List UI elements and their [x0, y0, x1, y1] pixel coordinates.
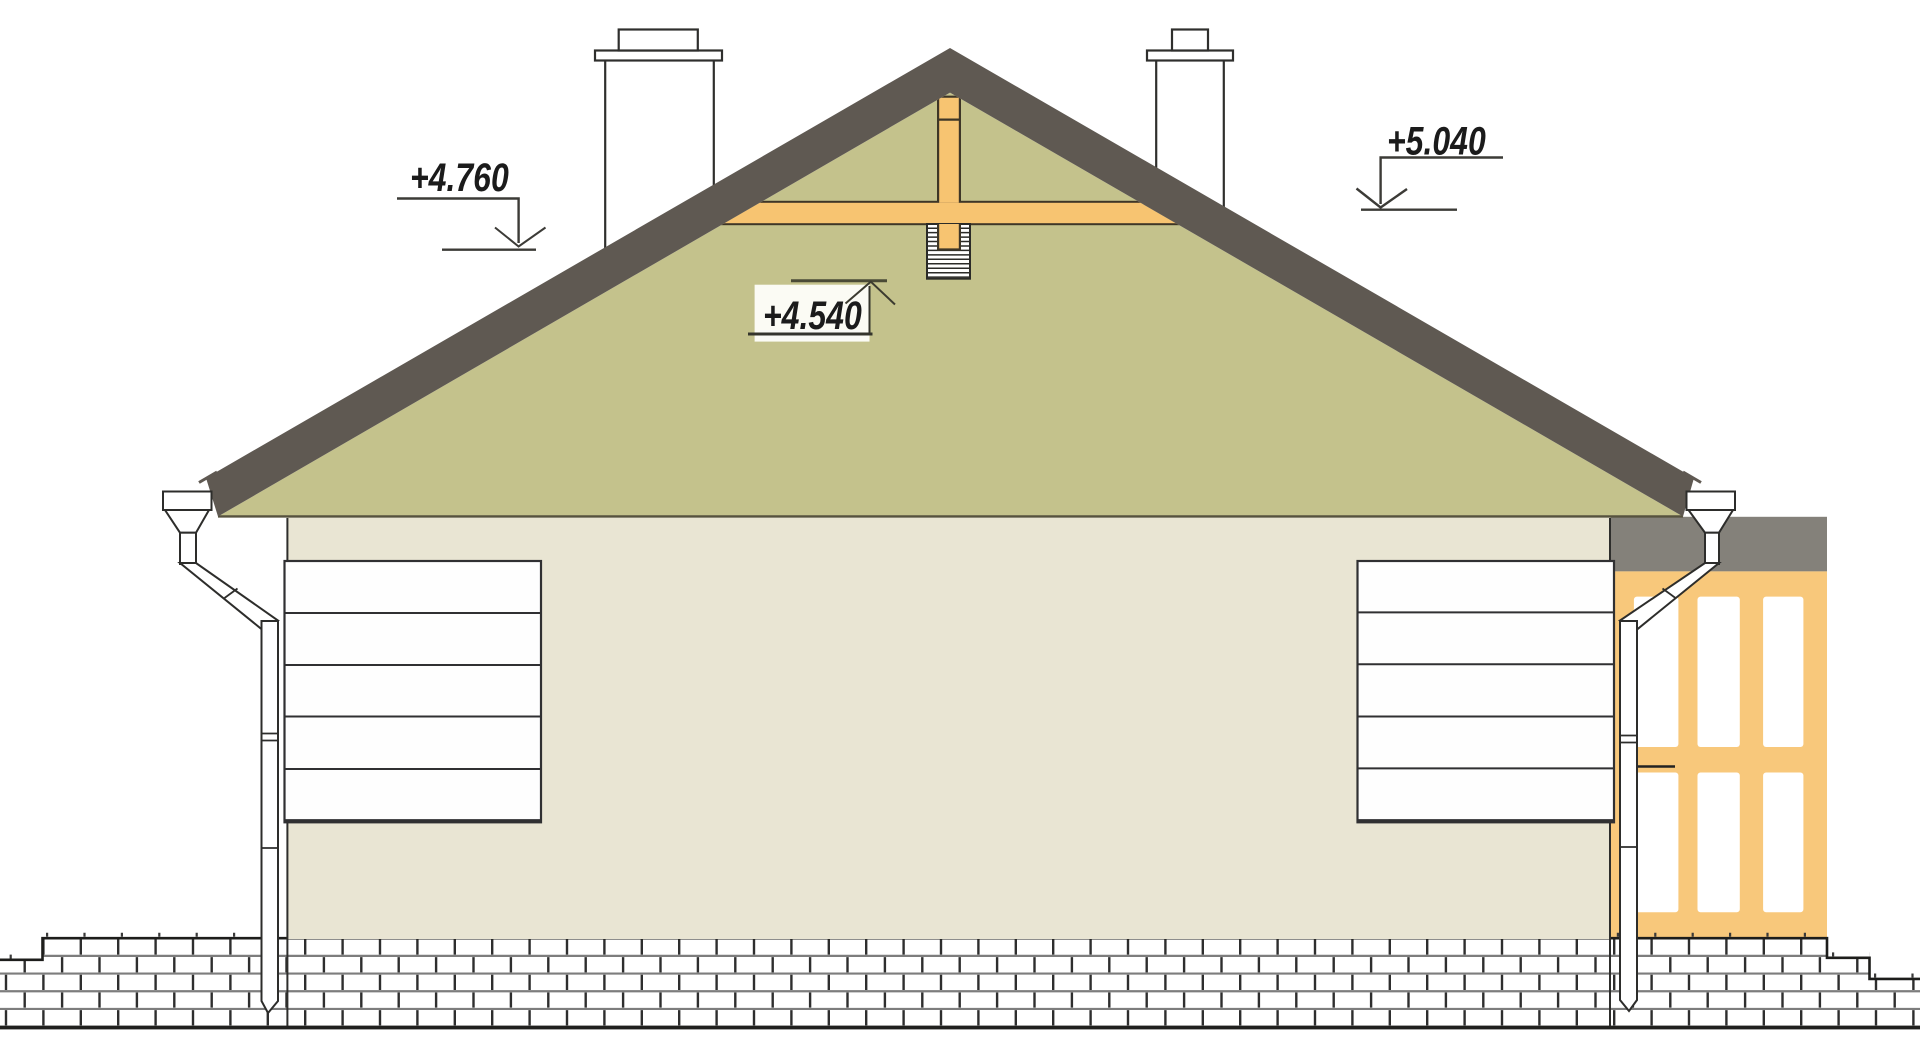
- svg-text:+5.040: +5.040: [1387, 118, 1486, 163]
- svg-text:+4.540: +4.540: [763, 293, 862, 338]
- svg-text:+4.760: +4.760: [410, 155, 509, 200]
